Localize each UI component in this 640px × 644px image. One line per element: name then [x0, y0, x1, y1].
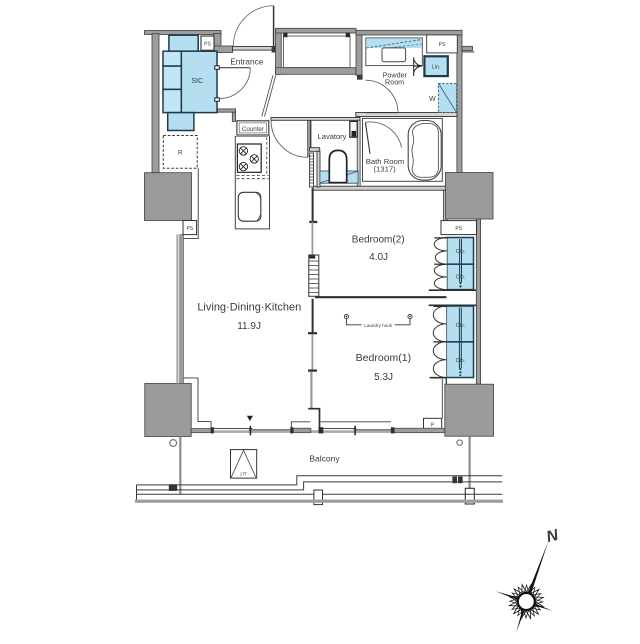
svg-text:SIC: SIC	[191, 76, 203, 85]
svg-text:R: R	[178, 149, 183, 156]
svg-text:Entrance: Entrance	[230, 56, 264, 66]
svg-text:17F: 17F	[240, 472, 248, 477]
svg-text:PS: PS	[204, 41, 211, 47]
svg-text:Clo.: Clo.	[456, 274, 466, 280]
svg-text:W: W	[429, 96, 436, 103]
svg-text:Laundry hook: Laundry hook	[364, 323, 393, 328]
svg-text:Counter: Counter	[242, 126, 264, 133]
svg-text:Bedroom(1): Bedroom(1)	[356, 352, 411, 364]
svg-text:Clo.: Clo.	[456, 358, 466, 364]
svg-text:PS: PS	[186, 226, 193, 232]
svg-text:Bedroom(2): Bedroom(2)	[352, 234, 405, 245]
svg-text:PS: PS	[439, 42, 446, 48]
svg-text:Clo.: Clo.	[456, 323, 466, 329]
svg-text:5.3J: 5.3J	[374, 372, 393, 383]
svg-text:Living·Dining·Kitchen: Living·Dining·Kitchen	[197, 301, 301, 313]
svg-text:(1317): (1317)	[373, 165, 396, 174]
svg-text:4.0J: 4.0J	[369, 252, 388, 263]
svg-text:Lavatory: Lavatory	[318, 132, 347, 141]
svg-text:Lin.: Lin.	[432, 64, 441, 70]
svg-text:Clo.: Clo.	[456, 249, 466, 255]
svg-text:Room: Room	[385, 77, 404, 86]
svg-text:11.9J: 11.9J	[237, 321, 261, 332]
svg-text:PS: PS	[455, 226, 462, 232]
svg-text:Balcony: Balcony	[309, 453, 340, 463]
